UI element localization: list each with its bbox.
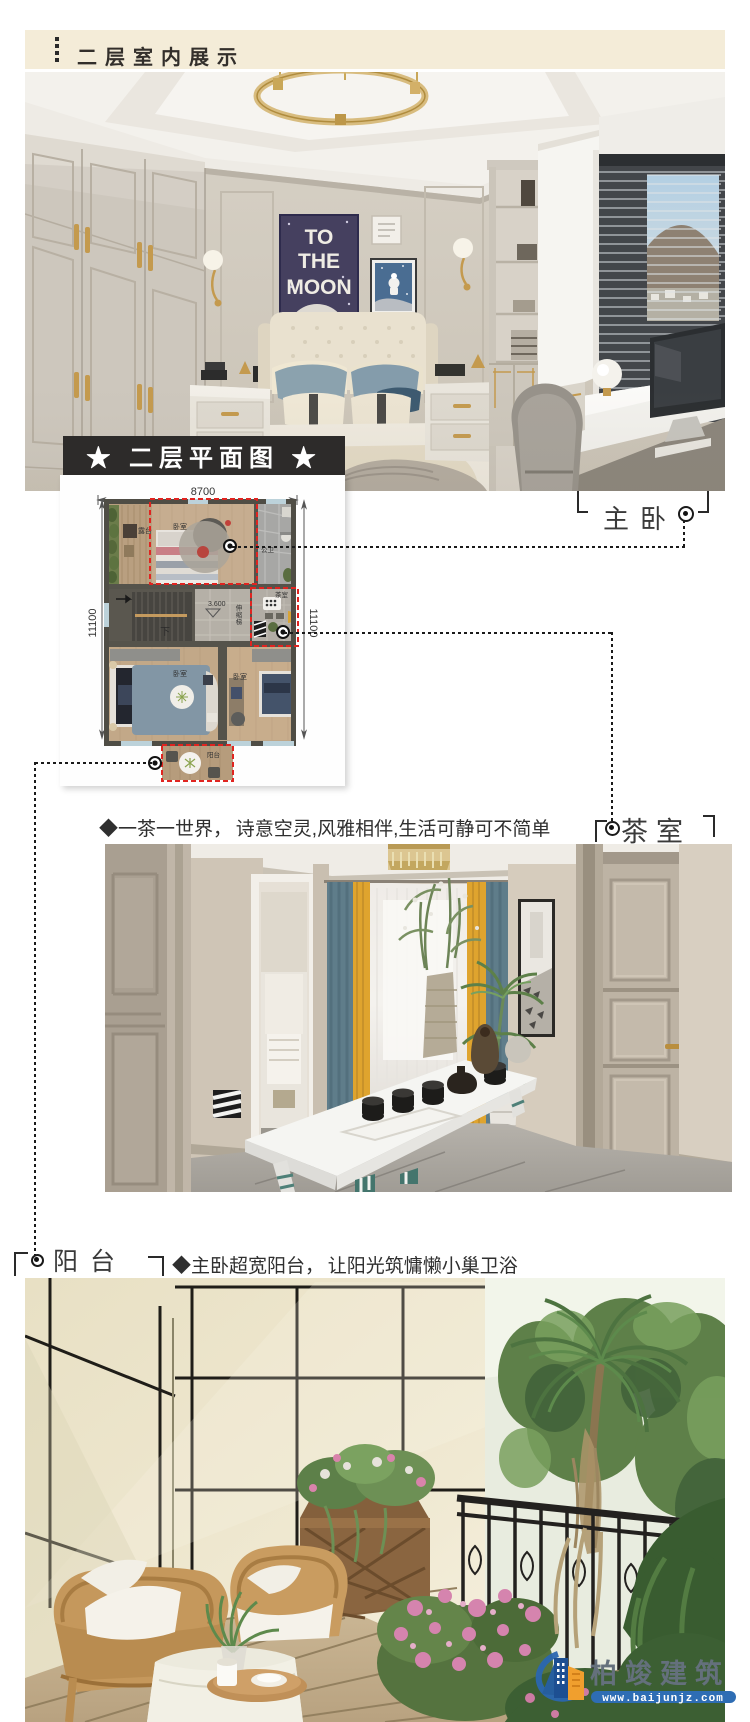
svg-text:阳台: 阳台 [207, 750, 220, 759]
svg-text:8700: 8700 [191, 486, 215, 498]
svg-text:11100: 11100 [87, 609, 99, 638]
svg-text:卧室: 卧室 [173, 522, 187, 531]
svg-text:卧室: 卧室 [173, 669, 187, 678]
svg-text:伸缩梯: 伸缩梯 [236, 603, 243, 626]
svg-text:柏竣建筑: 柏竣建筑 [590, 1658, 730, 1689]
svg-text:茶室: 茶室 [275, 590, 289, 599]
svg-text:www.baijunjz.com: www.baijunjz.com [602, 1693, 724, 1705]
svg-text:3.600: 3.600 [208, 601, 226, 608]
svg-text:下: 下 [160, 627, 170, 638]
svg-text:卧室: 卧室 [233, 672, 247, 681]
